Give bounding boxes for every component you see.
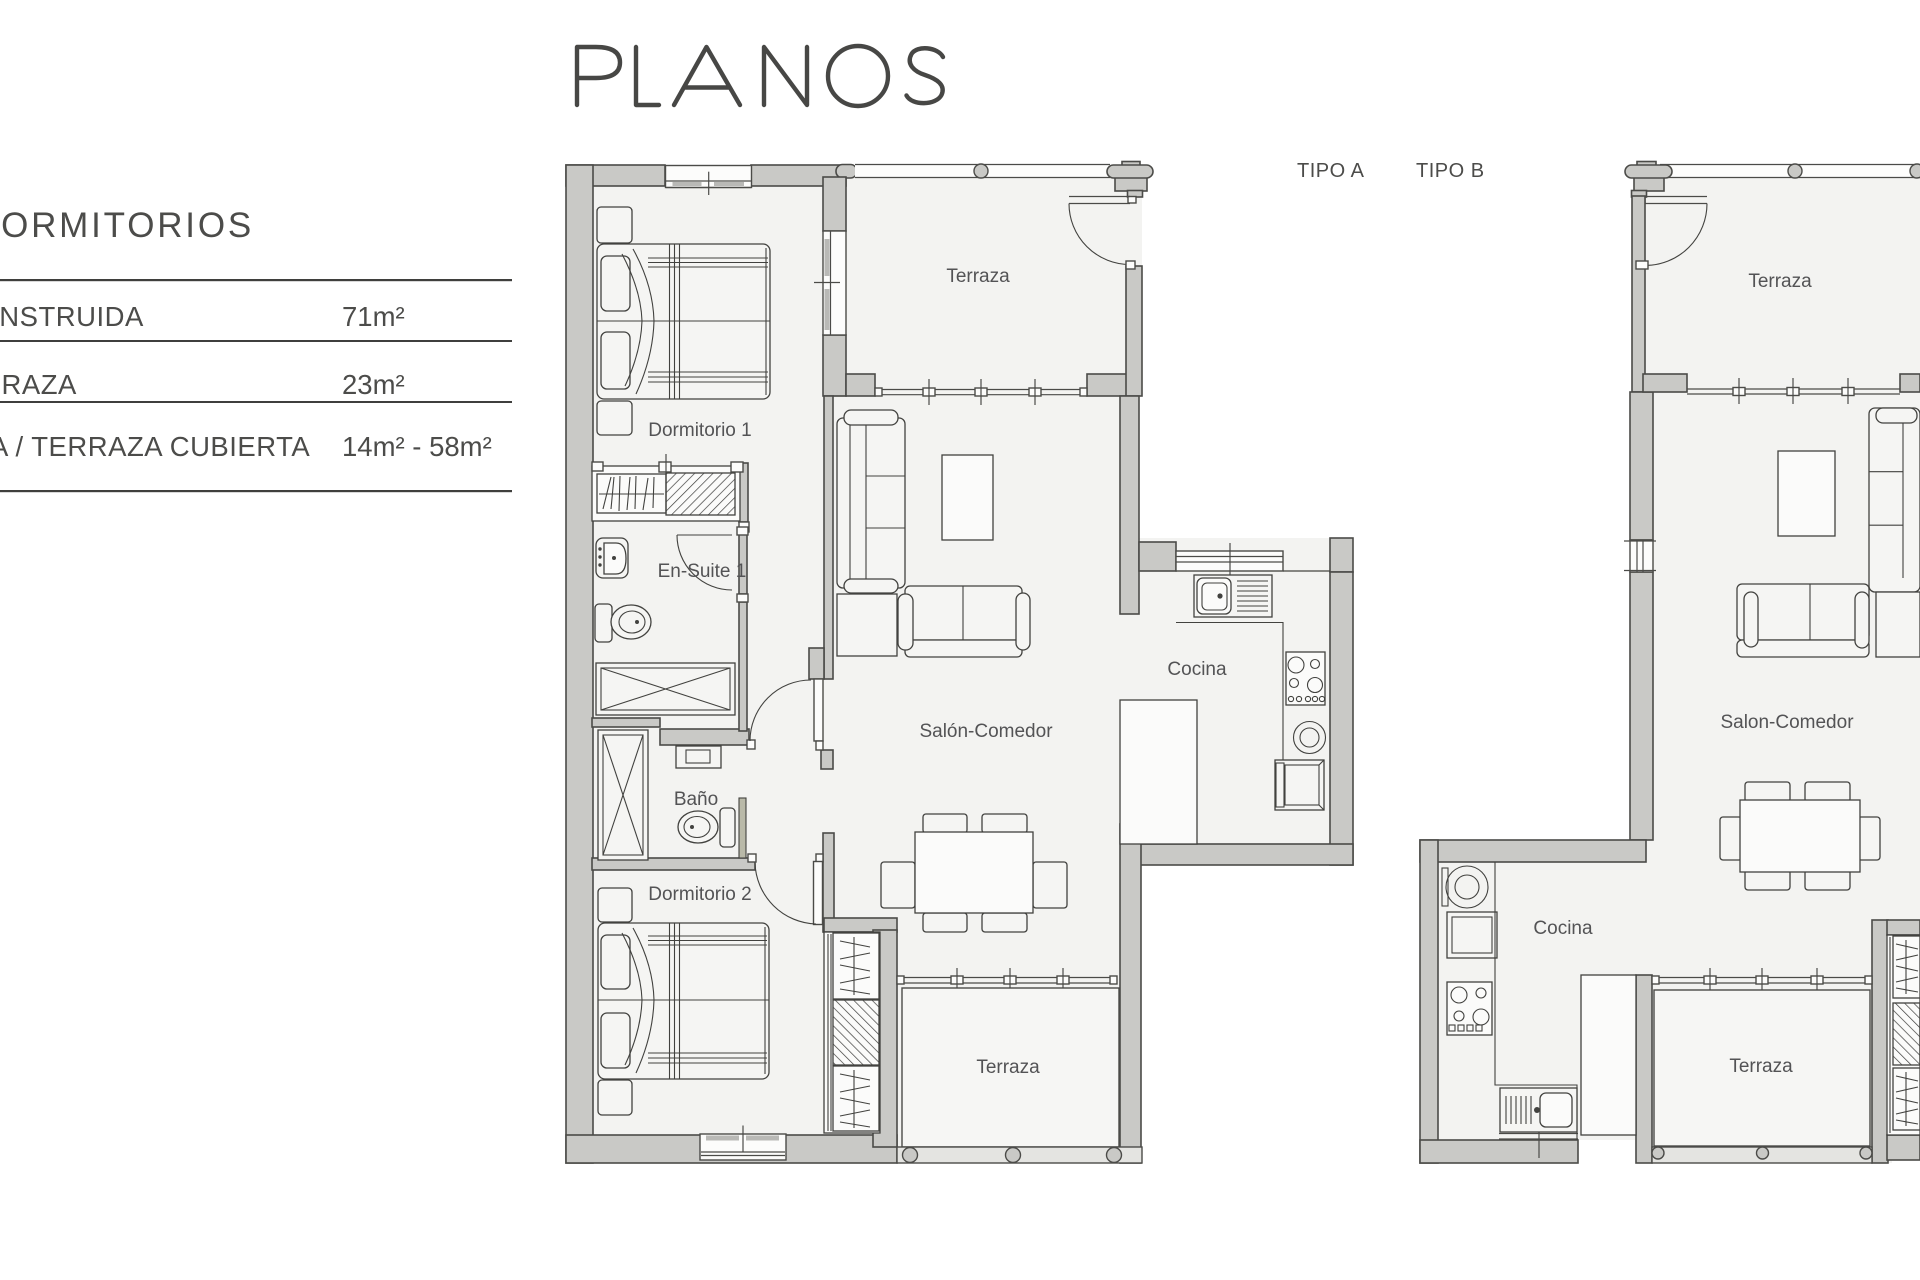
svg-text:Terraza: Terraza: [1748, 271, 1812, 292]
svg-text:TIPO A: TIPO A: [1297, 160, 1365, 182]
svg-text:En-Suite 1: En-Suite 1: [658, 561, 747, 582]
svg-text:Salón-Comedor: Salón-Comedor: [919, 721, 1053, 742]
svg-text:DORMITORIOS: DORMITORIOS: [0, 206, 254, 245]
svg-text:71m²: 71m²: [342, 301, 405, 332]
svg-text:23m²: 23m²: [342, 369, 405, 400]
svg-text:Terraza: Terraza: [976, 1057, 1040, 1078]
svg-text:Salon-Comedor: Salon-Comedor: [1720, 712, 1854, 733]
svg-text:Terraza: Terraza: [946, 266, 1010, 287]
svg-text:Dormitorio 2: Dormitorio 2: [648, 884, 751, 905]
svg-text:A / TERRAZA CUBIERTA: A / TERRAZA CUBIERTA: [0, 431, 310, 462]
svg-text:TIPO B: TIPO B: [1416, 160, 1485, 182]
svg-text:CONSTRUIDA: CONSTRUIDA: [0, 301, 144, 332]
svg-text:Terraza: Terraza: [1729, 1056, 1793, 1077]
svg-text:Cocina: Cocina: [1167, 659, 1227, 680]
svg-text:Baño: Baño: [674, 789, 718, 810]
svg-text:14m² - 58m²: 14m² - 58m²: [342, 431, 492, 462]
svg-text:TERRAZA: TERRAZA: [0, 369, 77, 400]
svg-text:Cocina: Cocina: [1533, 918, 1593, 939]
svg-text:Dormitorio 1: Dormitorio 1: [648, 420, 751, 441]
